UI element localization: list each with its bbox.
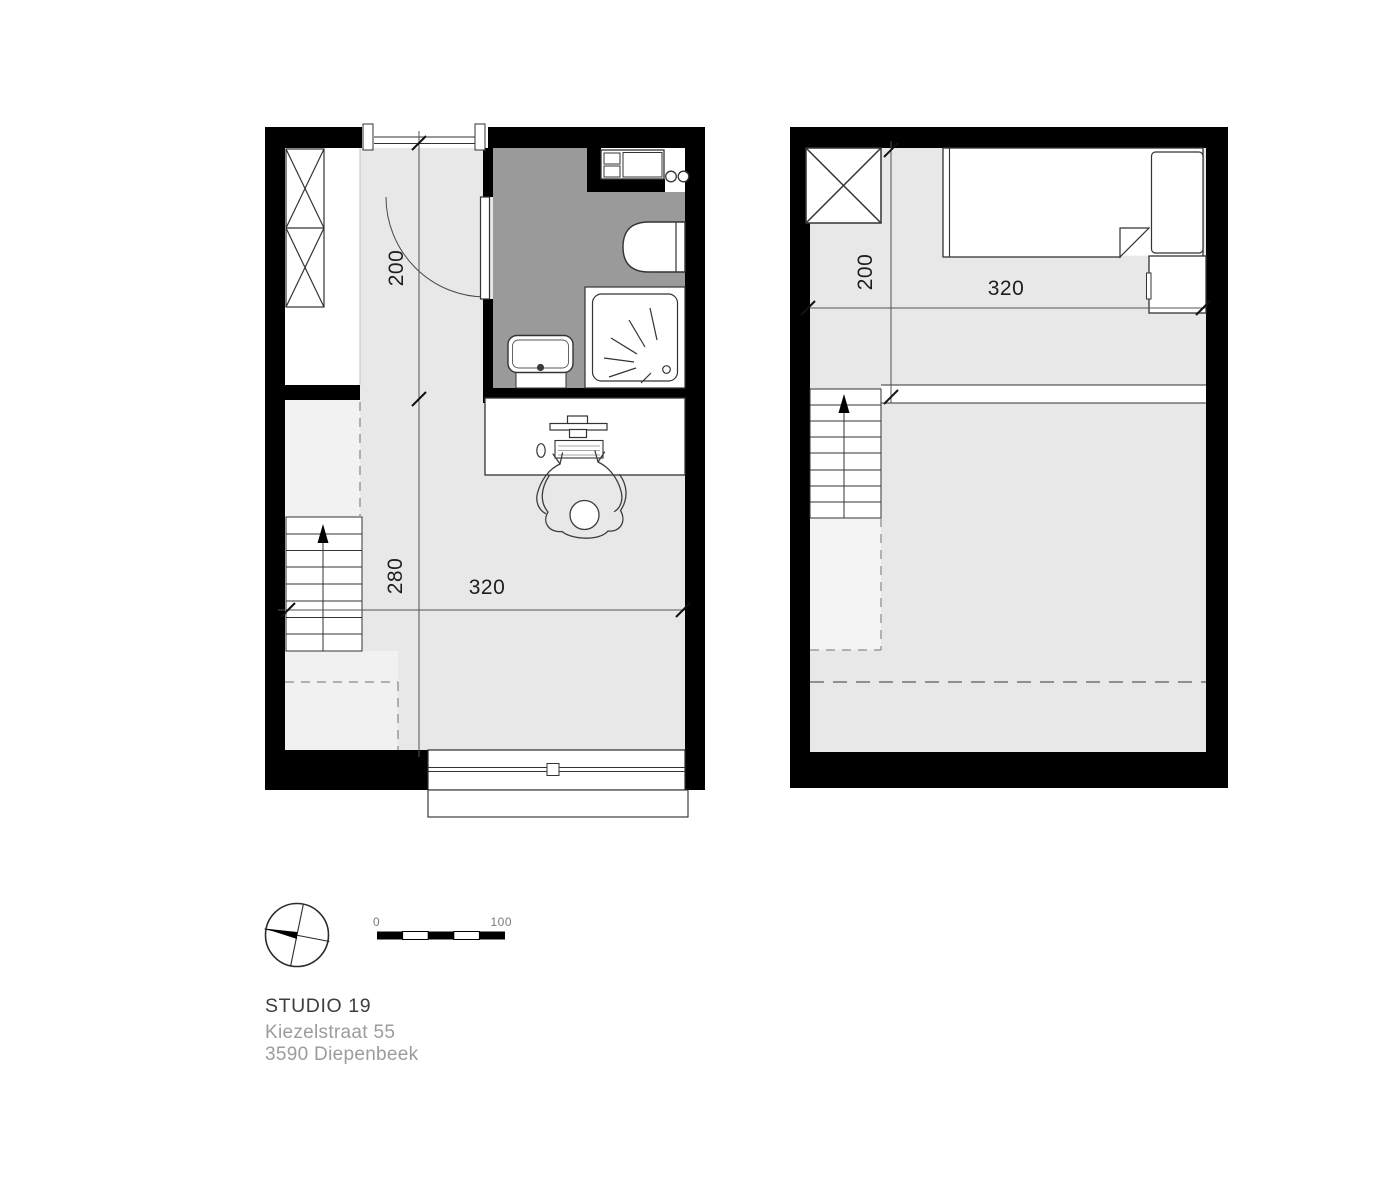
hob-burner [666,171,677,182]
bed [943,148,1203,259]
door-handle [547,764,559,776]
address-street: Kiezelstraat 55 [265,1022,565,1044]
ground-floor-plan [265,124,705,817]
exterior-step [428,790,688,817]
dim-label-loft-landing-width: 200 [854,240,878,304]
wall-stub-internal [267,385,360,400]
window-jamb-left [363,124,373,150]
scale-segment [377,932,403,940]
window-jamb-right [475,124,485,150]
hob-burner [678,171,689,182]
person-head [570,501,599,530]
loft-void-floor [810,518,881,650]
blanket-fold-gap [1121,256,1149,259]
kitchen-sink-bowl [604,153,620,164]
entrance-glazing [428,750,688,817]
nightstand [1147,256,1207,313]
shower [585,287,685,388]
wall-bottom [790,752,1228,788]
project-title: STUDIO 19 [265,995,565,1018]
washbasin-faucet [537,364,544,371]
toilet [623,222,685,272]
wall-left [790,127,810,788]
shower-drain [663,366,671,374]
scale-start-label: 0 [373,915,380,929]
wall-top-right [486,127,705,148]
bathroom-wall-upper [483,148,493,197]
kitchen-worktop [623,153,662,178]
desk [485,398,685,475]
pillow [1152,152,1204,253]
scale-segment [454,932,480,940]
dim-label-room-depth: 280 [384,544,408,608]
scale-bar-graphic [377,932,505,940]
nightstand-outline [1149,256,1206,313]
bathroom-wall-lower [483,299,493,388]
scale-segment [403,932,429,940]
north-arrow-compass [265,904,330,967]
wall-left [265,127,285,790]
loft-staircase [810,389,881,518]
mouse [537,444,545,458]
wall-right [1206,127,1228,788]
dim-label-loft-room-width: 320 [974,277,1038,301]
wardrobe [806,148,881,223]
staircase [286,517,362,651]
loft-edge-band [881,385,1206,403]
door-leaf [481,197,490,299]
address-city: 3590 Diepenbeek [265,1044,565,1066]
nightstand-handle [1147,273,1152,299]
wall-right [685,127,705,790]
entry-corner-floor [285,651,398,750]
loft-floor-plan [790,127,1228,788]
closet [286,149,324,307]
kitchen-sink-bowl [604,166,620,177]
scale-segment [479,932,505,940]
floor-plan-sheet: 200 280 320 200 320 0 100 STUDIO 19 Kiez… [0,0,1395,1200]
title-block: STUDIO 19 Kiezelstraat 55 3590 Diepenbee… [265,995,565,1065]
kitchen-wall-stub [587,148,601,192]
loft-edge-fill [881,385,1206,403]
dim-label-room-width: 320 [455,576,519,600]
scale-end-label: 100 [478,915,512,929]
wall-top [790,127,1228,148]
scale-segment [428,932,454,940]
washbasin [508,336,573,389]
kitchen-wall-band [601,179,665,192]
wall-bottom [265,750,428,790]
dim-label-hall-width: 200 [385,236,409,300]
plan-drawing [0,0,1395,1200]
washbasin-pedestal [516,373,566,389]
